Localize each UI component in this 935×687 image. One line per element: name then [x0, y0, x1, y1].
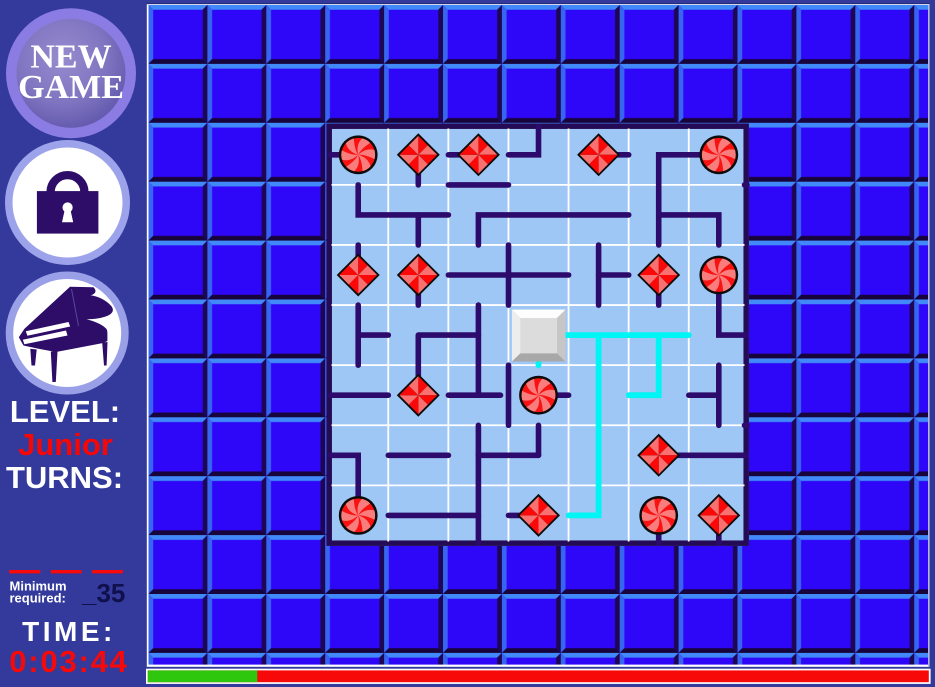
svg-text:TIME:: TIME: — [22, 616, 116, 647]
svg-text:required:: required: — [10, 591, 66, 606]
svg-text:0:03:44: 0:03:44 — [9, 644, 128, 679]
svg-text:_35: _35 — [81, 578, 125, 608]
svg-text:Junior: Junior — [18, 427, 113, 462]
svg-text:LEVEL:: LEVEL: — [10, 394, 120, 429]
svg-text:TURNS:: TURNS: — [6, 460, 123, 495]
svg-text:GAME: GAME — [18, 69, 124, 106]
